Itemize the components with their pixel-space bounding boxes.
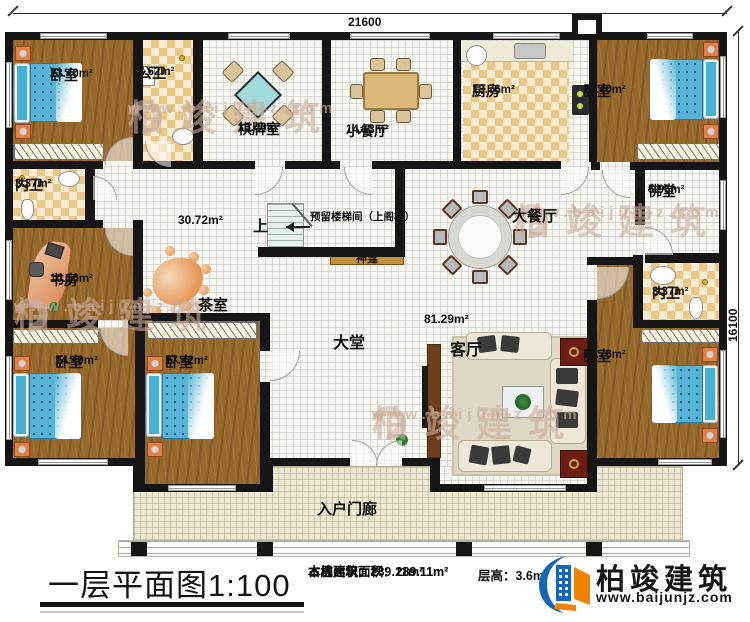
- window: [168, 485, 236, 491]
- nightstand: [14, 356, 30, 371]
- open-area-label: 30.72m²: [178, 213, 223, 227]
- wall: [13, 320, 98, 328]
- room-area: 13.76m²: [472, 84, 515, 97]
- dimension-right: 16100: [726, 300, 740, 342]
- round-table-top: [458, 215, 502, 259]
- wardrobe: [14, 143, 104, 160]
- room-area: 10.10m²: [50, 273, 93, 286]
- sink: [650, 266, 676, 285]
- wall: [258, 247, 405, 257]
- toilet: [689, 297, 703, 319]
- sofa-cushion: [555, 389, 579, 408]
- office-chair: [29, 262, 44, 277]
- nightstand: [15, 46, 31, 61]
- plant-icon: [49, 302, 59, 312]
- wall: [633, 255, 643, 328]
- dimension-top: 21600: [348, 15, 381, 29]
- window: [720, 56, 726, 118]
- room-label-big-dining: 大餐厅: [512, 205, 557, 226]
- dimension-tick-icon: [721, 5, 732, 16]
- window: [6, 62, 12, 128]
- wall: [322, 40, 331, 165]
- window: [6, 240, 12, 300]
- wall: [143, 161, 205, 169]
- dimension-line-right: [738, 32, 739, 466]
- chair: [513, 229, 527, 245]
- room-kitchen-floor: [463, 62, 569, 162]
- pillar: [456, 542, 472, 556]
- side-table-decor: [569, 347, 579, 357]
- chair: [396, 110, 411, 123]
- nightstand: [702, 347, 718, 362]
- sofa-cushion: [469, 445, 490, 466]
- window: [493, 33, 560, 39]
- bed-sheet: [650, 59, 676, 120]
- room-area: 3.37m²: [652, 286, 688, 299]
- room-label-lobby: 大堂: [333, 329, 365, 353]
- nightstand: [147, 356, 163, 371]
- chair: [419, 84, 432, 99]
- wall: [330, 161, 340, 169]
- wardrobe: [147, 322, 257, 339]
- chair: [472, 190, 488, 204]
- tv-cabinet: [427, 344, 441, 458]
- wall: [260, 313, 270, 351]
- room-area: 14.13m²: [346, 124, 389, 137]
- headboard: [147, 374, 161, 436]
- sofa-cushion: [491, 445, 511, 465]
- wardrobe: [13, 329, 99, 344]
- wall: [453, 40, 461, 165]
- room-area: 5.96m²: [648, 184, 684, 197]
- chair: [370, 58, 385, 71]
- wall: [265, 458, 350, 466]
- room-label-tea-room: 茶室: [198, 294, 228, 315]
- chair: [396, 58, 411, 71]
- window: [38, 459, 108, 465]
- stairs-up-label: 上: [253, 215, 268, 236]
- window: [6, 356, 12, 440]
- wardrobe: [637, 143, 720, 160]
- headboard: [15, 64, 29, 122]
- title-underline-2: [40, 611, 304, 613]
- sink: [172, 128, 194, 145]
- wall: [13, 220, 103, 228]
- wall: [133, 161, 143, 169]
- wall: [587, 257, 643, 265]
- tv: [422, 366, 428, 428]
- wardrobe: [641, 329, 721, 343]
- stat-line: 占地面积：289.11m²: [308, 563, 423, 582]
- room-label-living: 客厅: [450, 336, 482, 360]
- title-underline: [40, 602, 304, 607]
- tea-stool: [165, 246, 175, 256]
- headboard: [703, 366, 717, 422]
- living-area-label: 81.29m²: [424, 312, 469, 326]
- tea-stool: [189, 252, 199, 262]
- room-label-porch: 入户门廊: [317, 498, 377, 519]
- pillar: [131, 542, 147, 556]
- tea-stool: [182, 301, 192, 311]
- window: [484, 485, 566, 491]
- wall: [461, 161, 561, 169]
- bed-sheet: [55, 373, 81, 439]
- wall: [260, 382, 270, 492]
- chair: [350, 84, 363, 99]
- bed-sheet: [652, 365, 677, 423]
- plant-icon: [515, 394, 531, 410]
- bed-sheet: [188, 373, 214, 439]
- arrow-head-icon: [281, 222, 294, 232]
- room-area: 17.42m²: [165, 355, 208, 368]
- floor-height: 层高：3.6m: [478, 567, 544, 586]
- wall: [205, 161, 255, 169]
- room-area: 16.76m²: [583, 349, 626, 362]
- wall: [633, 320, 727, 328]
- nightstand: [14, 442, 30, 457]
- window: [720, 180, 726, 230]
- window: [350, 33, 430, 39]
- window: [228, 33, 290, 39]
- sofa-cushion: [500, 335, 520, 353]
- flue: [572, 14, 602, 40]
- brand-url: www.baijunjz.com: [596, 589, 733, 605]
- toilet: [21, 199, 34, 220]
- window: [658, 459, 712, 465]
- wall: [285, 161, 330, 169]
- wall: [135, 321, 145, 492]
- room-area: 13.40m²: [50, 68, 93, 81]
- wall: [589, 40, 597, 162]
- room-area: 3.62m²: [138, 66, 174, 79]
- headboard: [704, 60, 718, 118]
- room-area: 13.40m²: [238, 122, 281, 135]
- brand-logo-icon: [536, 553, 594, 615]
- stair-note: 预留楼梯间（上阁楼）: [310, 209, 415, 224]
- nightstand: [15, 124, 31, 139]
- light-icon: [179, 55, 185, 61]
- light-icon: [702, 279, 708, 285]
- kitchen-sink: [514, 43, 546, 59]
- porch-steps: [118, 540, 690, 557]
- plan-title: 一层平面图1:100: [48, 560, 291, 605]
- headboard: [14, 374, 28, 436]
- nightstand: [147, 442, 163, 457]
- chair: [433, 229, 447, 245]
- nightstand: [703, 124, 719, 139]
- wall: [591, 162, 600, 170]
- sofa-cushion: [556, 368, 578, 384]
- room-area: 14.49m²: [55, 355, 98, 368]
- wall: [635, 162, 645, 225]
- sofa-cushion: [556, 412, 578, 428]
- tea-stool: [201, 264, 211, 274]
- room-area: 3.37m²: [15, 178, 51, 191]
- wall: [193, 40, 203, 168]
- wall: [372, 161, 461, 169]
- dimension-tick-icon: [7, 5, 18, 16]
- room-area: 13.40m²: [583, 84, 626, 97]
- window: [647, 33, 693, 39]
- burner: [577, 103, 583, 109]
- nightstand: [702, 428, 718, 443]
- dimension-line-top: [13, 13, 727, 14]
- floor-plan: 神龛: [0, 0, 750, 622]
- window: [40, 33, 107, 39]
- sink: [58, 171, 80, 187]
- chair: [472, 270, 488, 284]
- tea-stool: [143, 288, 152, 297]
- window: [720, 350, 726, 438]
- side-table-decor: [569, 459, 579, 469]
- wall: [587, 300, 597, 458]
- nightstand: [703, 42, 719, 57]
- pillar: [257, 542, 273, 556]
- kitchen-round-basin: [466, 45, 487, 66]
- wall: [133, 40, 143, 161]
- chair: [370, 110, 385, 123]
- dining-table: [363, 72, 419, 110]
